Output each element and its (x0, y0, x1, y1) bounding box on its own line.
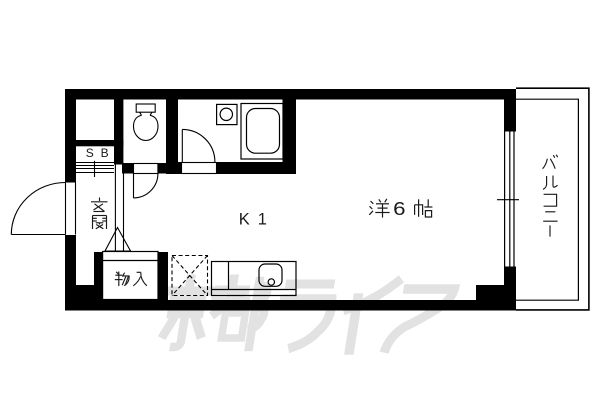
svg-text:B: B (101, 146, 109, 160)
svg-text:K: K (239, 211, 250, 229)
svg-text:S: S (86, 146, 94, 160)
svg-text:1: 1 (258, 211, 267, 229)
svg-text:6: 6 (393, 198, 405, 219)
